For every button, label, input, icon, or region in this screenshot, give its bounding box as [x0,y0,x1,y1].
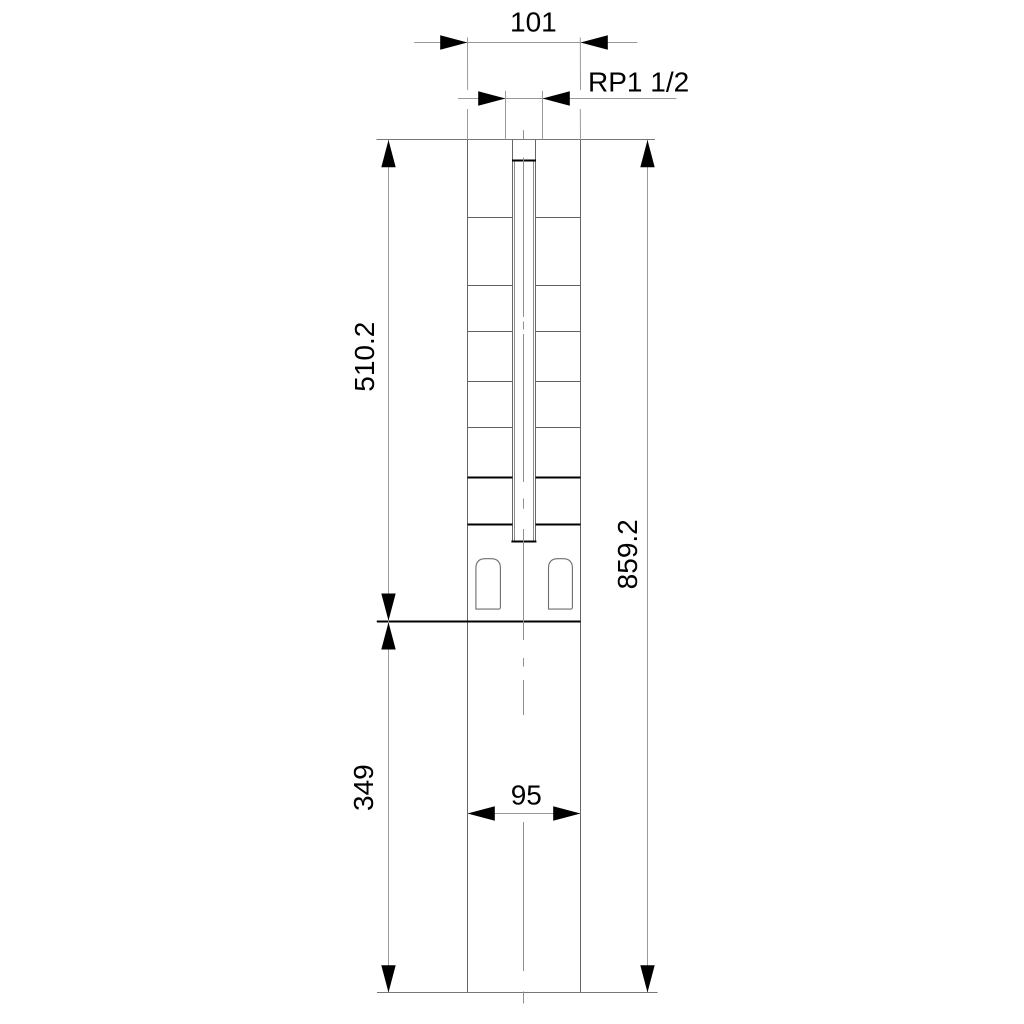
svg-text:859.2: 859.2 [612,519,643,589]
svg-text:349: 349 [348,764,379,811]
svg-text:510.2: 510.2 [349,322,380,392]
svg-text:95: 95 [511,779,542,810]
svg-text:RP1 1/2: RP1 1/2 [588,67,689,98]
svg-text:101: 101 [510,7,557,38]
